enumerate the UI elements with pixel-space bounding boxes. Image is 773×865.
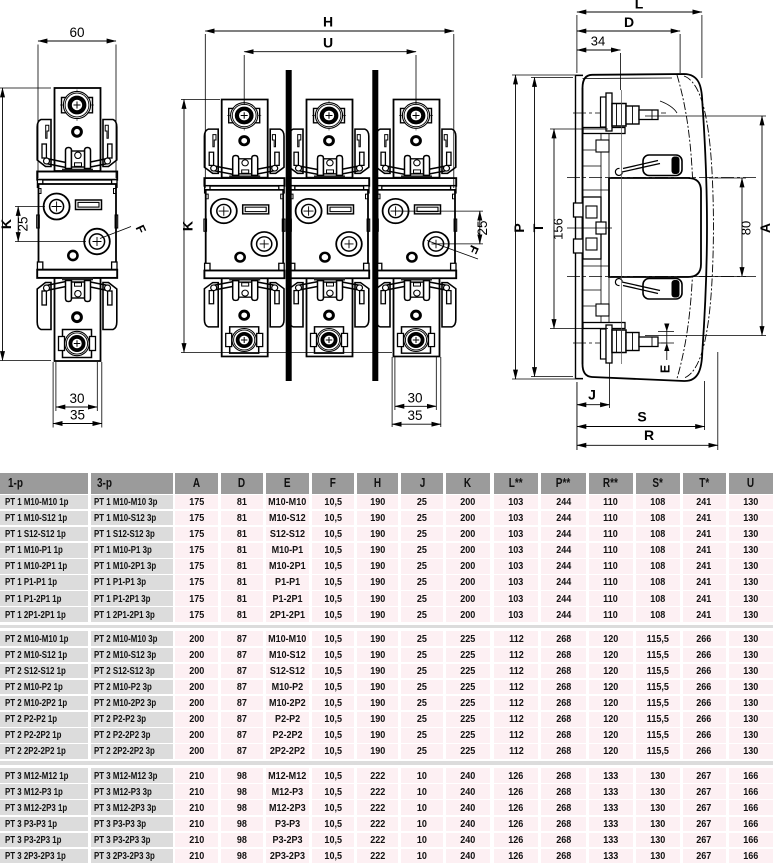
svg-text:80: 80 — [739, 221, 754, 235]
svg-text:E: E — [659, 365, 673, 373]
svg-text:K: K — [180, 221, 196, 231]
svg-text:35: 35 — [70, 408, 85, 423]
svg-text:S: S — [637, 409, 646, 425]
svg-text:156: 156 — [551, 218, 566, 240]
svg-text:35: 35 — [407, 408, 422, 423]
svg-text:U: U — [323, 35, 333, 51]
svg-text:A: A — [757, 223, 773, 233]
svg-text:J: J — [588, 387, 596, 403]
svg-text:T: T — [530, 223, 546, 232]
svg-text:F: F — [465, 243, 481, 256]
svg-text:30: 30 — [407, 390, 422, 405]
svg-text:60: 60 — [69, 25, 84, 40]
svg-text:R: R — [644, 427, 654, 443]
svg-text:30: 30 — [69, 391, 84, 406]
svg-text:34: 34 — [591, 34, 605, 49]
svg-text:K: K — [0, 219, 14, 229]
svg-text:H: H — [323, 14, 333, 30]
svg-text:F: F — [133, 223, 149, 236]
svg-text:L: L — [635, 0, 644, 12]
svg-text:25: 25 — [475, 220, 490, 235]
svg-text:D: D — [624, 14, 634, 30]
svg-text:P: P — [511, 223, 527, 232]
svg-text:25: 25 — [16, 216, 31, 231]
